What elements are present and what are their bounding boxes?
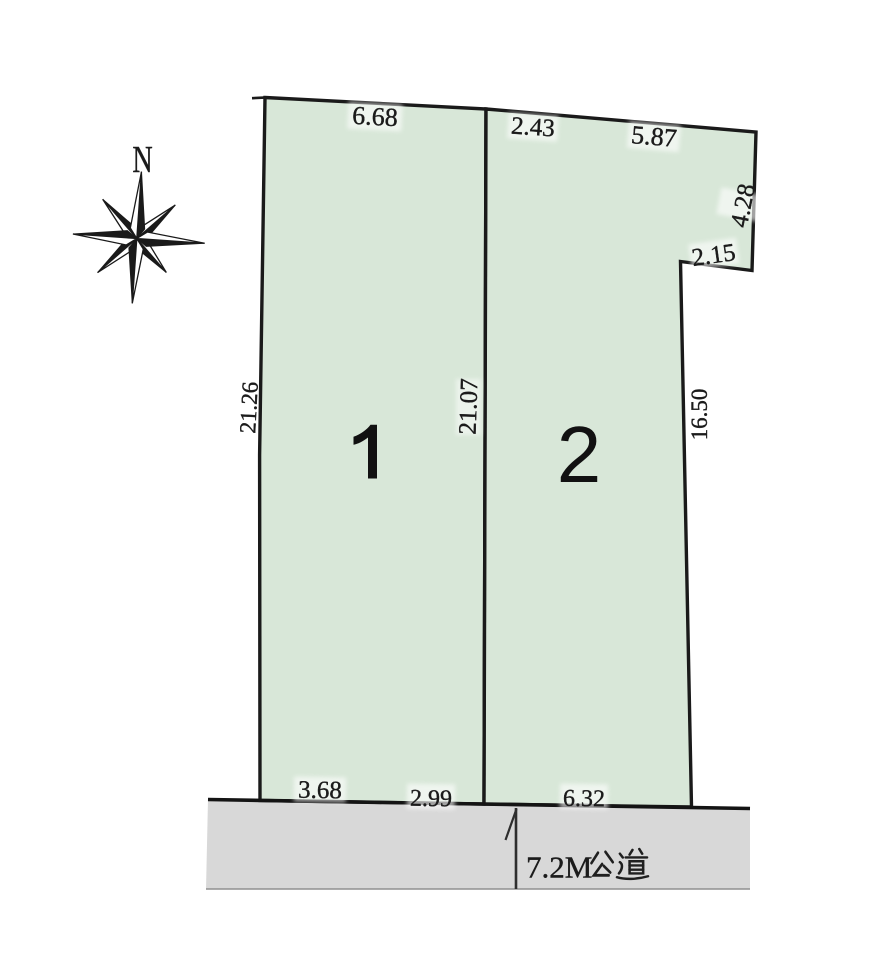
svg-text:2.43: 2.43: [510, 113, 556, 143]
svg-text:N: N: [132, 139, 152, 181]
svg-text:7.2M: 7.2M: [526, 850, 592, 885]
svg-text:21.26: 21.26: [235, 381, 263, 434]
svg-text:16.50: 16.50: [687, 389, 712, 441]
svg-text:6.32: 6.32: [563, 786, 605, 813]
svg-text:5.87: 5.87: [630, 120, 678, 153]
svg-text:21.07: 21.07: [455, 378, 484, 435]
svg-text:2.99: 2.99: [410, 786, 452, 813]
svg-text:3.68: 3.68: [298, 777, 342, 805]
svg-text:6.68: 6.68: [352, 101, 399, 132]
svg-text:2: 2: [557, 410, 602, 499]
